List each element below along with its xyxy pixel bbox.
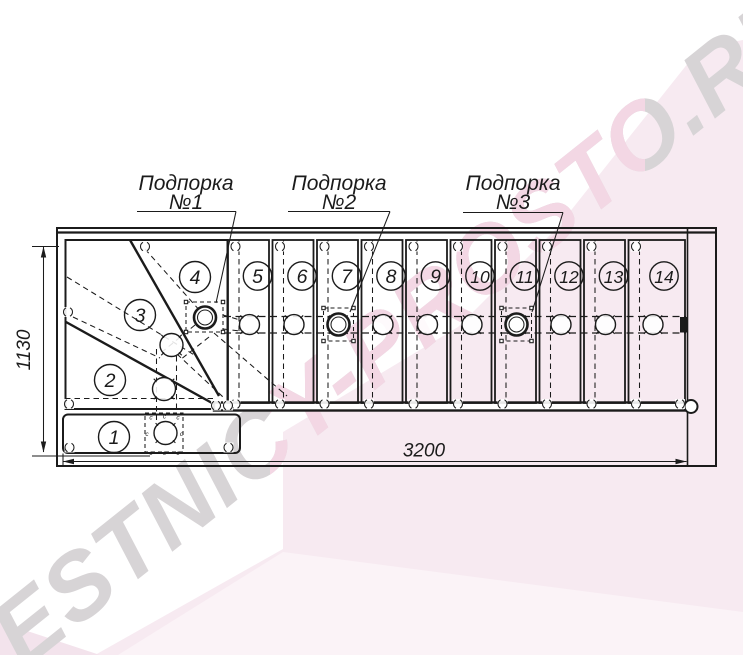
step-number: 6 — [297, 266, 308, 288]
support-2-number: №2 — [322, 191, 357, 214]
leader-line — [216, 212, 236, 304]
fastener-clamp-icon — [64, 399, 74, 409]
fastener-clamp-icon — [631, 242, 641, 252]
baluster-circle — [153, 378, 176, 401]
stringer-end-cap — [685, 400, 698, 413]
fastener-clamp-icon — [223, 401, 233, 411]
step-number: 5 — [252, 266, 263, 288]
step-number: 13 — [604, 267, 624, 287]
step-number-badge: 6 — [288, 262, 316, 290]
step-number: 12 — [559, 267, 579, 287]
step-number-badge: 4 — [180, 262, 211, 293]
baluster-circle — [462, 315, 482, 335]
fastener-clamp-icon — [364, 399, 374, 409]
step-number-badge: 5 — [243, 262, 271, 290]
fastener-clamp-icon — [320, 242, 330, 252]
step-number-badge: 12 — [555, 262, 583, 290]
fastener-clamp-icon — [409, 242, 419, 252]
fastener-clamp-icon — [63, 307, 73, 317]
clamp-mark: c — [176, 415, 180, 422]
steps-and-hardware: 5678910111213141234cccccccc — [63, 240, 685, 457]
support-post — [184, 300, 224, 333]
fastener-clamp-icon — [498, 399, 508, 409]
fastener-clamp-icon — [542, 242, 552, 252]
support-3-number: №3 — [496, 191, 531, 214]
step-number: 7 — [341, 266, 353, 288]
step-number-badge: 10 — [466, 262, 494, 290]
fastener-clamp-icon — [140, 242, 150, 252]
support-1-number: №1 — [169, 191, 203, 214]
fastener-clamp-icon — [675, 399, 685, 409]
baluster-circle — [643, 315, 663, 335]
baluster-circle — [284, 315, 304, 335]
step-number-badge: 1 — [99, 422, 130, 453]
height-dimension-label: 1130 — [14, 329, 35, 370]
baluster-circle — [418, 315, 438, 335]
fastener-clamp-icon — [587, 399, 597, 409]
fastener-clamp-icon — [231, 242, 241, 252]
fastener-clamp-icon — [453, 399, 463, 409]
length-dimension-label: 3200 — [403, 441, 446, 462]
step-number: 1 — [109, 427, 120, 449]
dimension-height: 1130 — [14, 247, 150, 457]
stair-plan-page: LESTNICY-PROSTO.RU LESTNICY-PROSTO.RU — [0, 0, 743, 655]
fastener-clamp-icon — [364, 242, 374, 252]
stair-plan-drawing: 5678910111213141234cccccccc 1130 3200 По… — [0, 0, 743, 655]
fastener-clamp-icon — [587, 242, 597, 252]
fastener-clamp-icon — [542, 399, 552, 409]
step-number-badge: 8 — [377, 262, 405, 290]
step-number: 14 — [654, 267, 674, 287]
baluster-circle — [551, 315, 571, 335]
baluster-circle — [596, 315, 616, 335]
winder-step-edge — [66, 322, 212, 403]
fastener-clamp-icon — [453, 242, 463, 252]
fastener-clamp-icon — [409, 399, 419, 409]
step-number-badge: 7 — [332, 262, 360, 290]
clamp-mark: c — [145, 431, 149, 438]
step-number: 8 — [386, 266, 397, 288]
step-number-badge: 11 — [510, 262, 538, 290]
step-number-badge: 3 — [125, 300, 156, 331]
fastener-clamp-icon — [224, 443, 234, 453]
step-number: 3 — [135, 305, 146, 327]
clamp-mark: c — [149, 415, 153, 422]
step-number: 11 — [515, 267, 533, 287]
support-post-bottom: cccccccc — [145, 413, 184, 457]
step-number: 9 — [430, 266, 441, 288]
step-number-badge: 14 — [650, 262, 678, 290]
step-number-badge: 13 — [599, 262, 627, 290]
fastener-clamp-icon — [320, 399, 330, 409]
step-number: 2 — [104, 370, 116, 392]
fastener-clamp-icon — [275, 399, 285, 409]
fastener-clamp-icon — [65, 443, 75, 453]
fastener-clamp-icon — [631, 399, 641, 409]
baluster-circle — [373, 315, 393, 335]
fastener-clamp-icon — [275, 242, 285, 252]
step-number: 4 — [190, 267, 201, 289]
step-number: 10 — [470, 267, 490, 287]
support-post — [500, 306, 533, 342]
fastener-clamp-icon — [498, 242, 508, 252]
step-number-badge: 2 — [95, 365, 126, 396]
step-number-badge: 9 — [421, 262, 449, 290]
leader-line — [350, 212, 390, 313]
fastener-clamp-icon — [211, 401, 221, 411]
baluster-circle — [240, 315, 260, 335]
baluster-circle — [160, 334, 183, 357]
